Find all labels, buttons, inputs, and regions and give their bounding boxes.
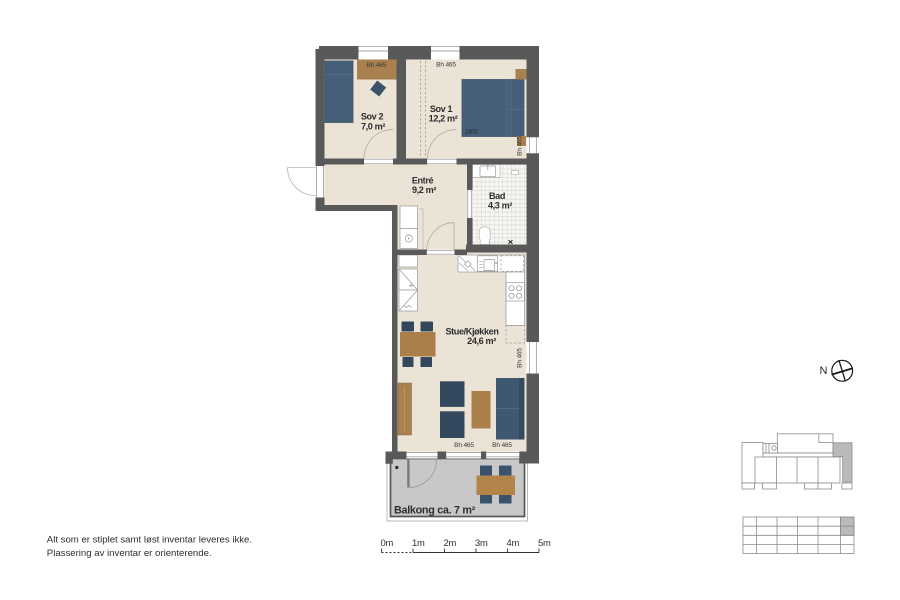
svg-text:7,0 m²: 7,0 m² [361, 121, 385, 131]
svg-text:2m: 2m [444, 537, 457, 548]
svg-text:12,2 m²: 12,2 m² [429, 114, 458, 124]
svg-text:Sov 2: Sov 2 [361, 112, 384, 122]
svg-text:Bh 465: Bh 465 [517, 348, 524, 368]
svg-text:1m: 1m [412, 537, 425, 548]
svg-text:4,3 m²: 4,3 m² [488, 201, 512, 211]
svg-text:4m: 4m [507, 537, 520, 548]
svg-text:Bh 465: Bh 465 [367, 62, 387, 69]
svg-text:1800: 1800 [465, 130, 479, 136]
svg-text:N: N [820, 365, 828, 377]
svg-text:Alt som er stiplet samt løst i: Alt som er stiplet samt løst inventar le… [47, 535, 252, 546]
svg-text:Bad: Bad [489, 191, 505, 201]
svg-text:24,6 m²: 24,6 m² [467, 336, 496, 346]
svg-text:3m: 3m [475, 537, 488, 548]
svg-text:5m: 5m [538, 537, 551, 548]
svg-text:Entré: Entré [412, 176, 434, 186]
svg-text:Balkong ca. 7 m²: Balkong ca. 7 m² [394, 504, 476, 516]
svg-text:Bh 465: Bh 465 [517, 136, 524, 156]
svg-text:Bh 465: Bh 465 [454, 442, 474, 449]
svg-text:0m: 0m [381, 537, 394, 548]
svg-text:Sov 1: Sov 1 [430, 104, 453, 114]
svg-text:Plassering av inventar er orie: Plassering av inventar er orienterende. [47, 548, 212, 559]
svg-text:9,2 m²: 9,2 m² [412, 185, 436, 195]
svg-text:Bh 465: Bh 465 [436, 62, 456, 69]
svg-text:Bh 465: Bh 465 [492, 442, 512, 449]
